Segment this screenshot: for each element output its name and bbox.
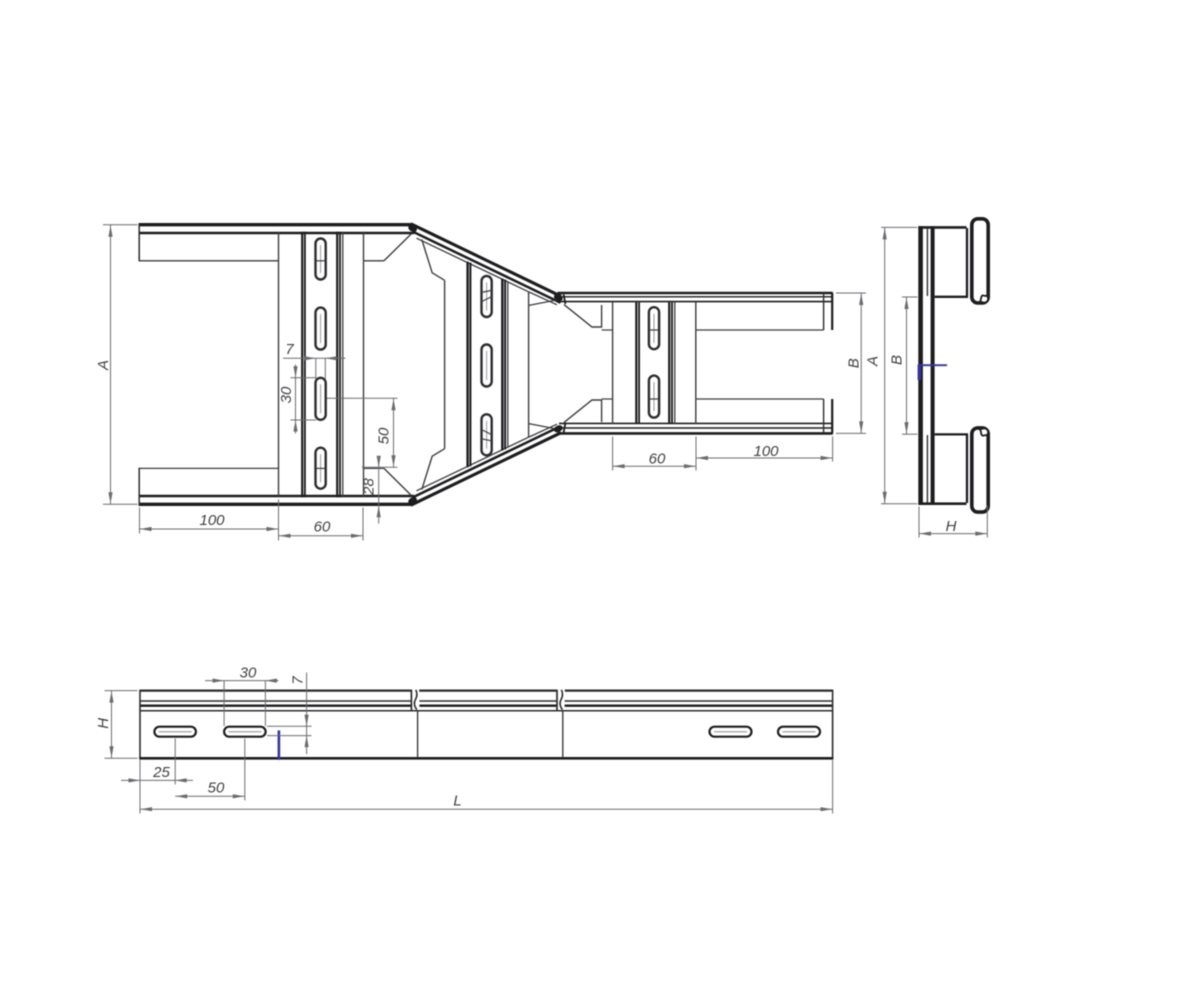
svg-text:L: L: [453, 792, 461, 809]
svg-text:100: 100: [753, 443, 779, 460]
svg-text:7: 7: [290, 676, 307, 685]
svg-text:50: 50: [208, 779, 225, 796]
svg-text:50: 50: [375, 427, 392, 444]
svg-text:H: H: [946, 518, 957, 535]
svg-text:30: 30: [240, 664, 257, 681]
svg-text:A: A: [864, 356, 881, 367]
svg-text:100: 100: [199, 512, 225, 529]
svg-text:25: 25: [152, 764, 170, 781]
svg-text:7: 7: [285, 341, 294, 358]
svg-text:B: B: [888, 355, 905, 365]
svg-text:A: A: [95, 360, 112, 371]
svg-text:60: 60: [314, 518, 331, 535]
svg-text:60: 60: [649, 450, 666, 467]
svg-text:H: H: [95, 718, 112, 729]
svg-text:28: 28: [360, 478, 377, 496]
svg-text:30: 30: [278, 386, 295, 403]
svg-text:B: B: [845, 358, 862, 368]
